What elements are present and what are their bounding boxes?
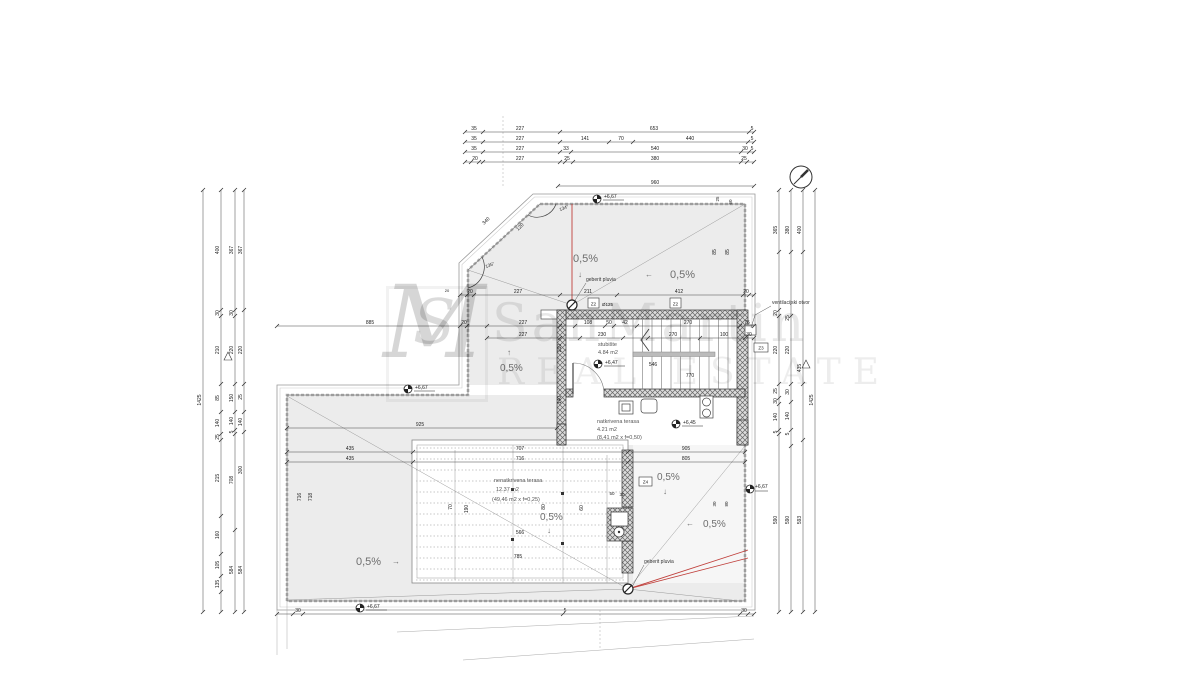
dim-label: 25 — [238, 394, 244, 400]
dim-label: 220 — [229, 346, 235, 355]
dim-label: 50 — [609, 491, 615, 496]
dim-label: 70 — [448, 504, 454, 510]
tag-z2-left: Z2 — [591, 302, 597, 307]
dim-label: 220 — [785, 346, 791, 355]
dim-label: 340 — [481, 216, 491, 226]
dim-label: 20 — [461, 320, 467, 326]
arrow-right-icon: → — [392, 557, 400, 566]
slope-label-right-roof: 0,5% — [703, 519, 726, 530]
slope-label-lower-roof: 0,5% — [356, 556, 381, 568]
arrow-left-icon: ← — [645, 270, 653, 279]
room-nenatkrivena-name: nenatkrivena terasa — [494, 478, 543, 484]
dim-label: 270 — [669, 332, 678, 338]
dim-label: 30 — [746, 332, 752, 338]
dim-label: 380 — [785, 226, 791, 235]
dim-label: 590 — [773, 516, 779, 525]
dim-label: 227 — [516, 146, 525, 152]
dim-label: 211 — [584, 289, 592, 295]
stair-handrail — [633, 352, 715, 357]
dim-label: 85 — [712, 249, 718, 255]
dim-label: 70 — [618, 136, 624, 142]
dim-label: 33 — [563, 146, 569, 152]
room-nenatkrivena-factor: (49,46 m2 x f=0,25) — [492, 497, 540, 503]
dim-label: 1425 — [197, 394, 203, 405]
dim-label: 25 — [741, 156, 747, 162]
dim-label: 141 — [581, 136, 590, 142]
elevation-roof-top: +6,67 — [604, 194, 617, 200]
dim-label: 367 — [229, 246, 235, 255]
terrace-fixtures — [619, 396, 713, 418]
dim-label: 60 — [728, 199, 733, 205]
dim-label: 35 — [471, 146, 477, 152]
dim-label: 25 — [564, 156, 570, 162]
dim-label: 805 — [682, 456, 691, 462]
dim-label: 540 — [651, 146, 660, 152]
chimney — [607, 508, 633, 541]
dim-label: 230 — [598, 332, 607, 338]
dim-label: 708 — [229, 476, 235, 485]
slope-label-left-strip: 0,5% — [500, 363, 523, 374]
dim-label: 435 — [346, 456, 355, 462]
dim-label: 108 — [584, 320, 593, 326]
dim-label: 5 — [564, 608, 567, 614]
room-natkrivena-area: 4.21 m2 — [597, 427, 617, 433]
arrow-down-icon: ↓ — [547, 526, 551, 535]
dim-label: 5 — [773, 430, 779, 433]
dim-label: 785 — [514, 554, 523, 560]
dim-label: 140 — [215, 419, 221, 428]
elevation-stair: +6,47 — [605, 360, 618, 366]
dim-label: 227 — [519, 332, 528, 338]
dim-label: 885 — [366, 320, 375, 326]
dim-label: 718 — [308, 493, 314, 502]
dim-label: 227 — [514, 289, 523, 295]
dim-label: 160 — [215, 531, 221, 540]
dim-label: 584 — [238, 566, 244, 575]
dim-label: 367 — [238, 246, 244, 255]
dim-label: 440 — [686, 136, 695, 142]
dim-label: 75 — [744, 320, 750, 326]
dim-label: 5 — [229, 430, 235, 433]
dim-label: 227 — [519, 320, 528, 326]
dim-label: 5 — [751, 136, 754, 142]
dim-label: 100 — [720, 332, 729, 338]
dim-label: 85 — [725, 249, 731, 255]
arrow-down-icon: ↓ — [663, 487, 667, 496]
drain-label-upper: geberit pluvia — [586, 277, 616, 283]
dim-label: 400 — [215, 246, 221, 255]
floor-drain-icon — [567, 300, 577, 310]
dim-label: 5 — [751, 146, 754, 152]
dim-label: 35 — [471, 126, 477, 132]
slope-label-mid: 0,5% — [657, 472, 680, 483]
dim-label: 25 — [785, 315, 791, 321]
tag-z3: Z3 — [758, 346, 764, 351]
dim-label: 140 — [557, 396, 563, 405]
slope-label-upper-roof: 0,5% — [573, 253, 598, 265]
elevation-right: +6,67 — [755, 484, 768, 490]
dim-label: 105 — [215, 561, 221, 570]
dim-label: 25 — [215, 434, 221, 440]
dim-label: 227 — [516, 136, 525, 142]
dim-label: 653 — [650, 126, 659, 132]
dim-label: 960 — [651, 180, 660, 186]
dim-label: 412 — [675, 289, 684, 295]
dim-label: 135 — [215, 580, 221, 589]
dim-label: 716 — [297, 493, 303, 502]
dim-label: 140 — [773, 413, 779, 422]
dim-label: 20 — [773, 310, 779, 316]
floor-plan-canvas: Z2 Z2 Z3 Z4 0,5% ↓ ← 0,5% ↑ 0,5% 0,5% ↓ … — [0, 0, 1200, 675]
dim-label: 227 — [516, 126, 525, 132]
dim-label: 20 — [743, 289, 749, 295]
room-natkrivena-factor: (8,41 m2 x f=0,50) — [597, 435, 642, 441]
dim-label: 30 — [785, 389, 791, 395]
dim-label: 300 — [238, 466, 244, 475]
dim-label: 25 — [773, 388, 779, 394]
dim-label: 30 — [229, 310, 235, 316]
slope-label-deck: 0,5% — [540, 512, 563, 523]
dim-label: 20 — [472, 156, 478, 162]
elevation-terrace-covered: +6,45 — [683, 420, 696, 426]
dim-label: 30 — [741, 608, 747, 614]
dim-label: 50 — [606, 320, 612, 326]
dim-label: 140 — [229, 417, 235, 426]
dim-label: 5 — [785, 432, 791, 435]
arrow-up-icon: ↑ — [507, 348, 511, 357]
dim-label: 85 — [215, 395, 221, 401]
room-stubiste-area: 4.84 m2 — [598, 350, 618, 356]
dim-label: 227 — [516, 156, 525, 162]
elevation-lower-roof: +6,67 — [415, 385, 428, 391]
room-natkrivena-name: natkrivena terasa — [597, 419, 640, 425]
dim-label: 30 — [619, 492, 625, 497]
dim-label: 435 — [797, 364, 803, 373]
dim-label: 716 — [516, 456, 525, 462]
dim-label: 220 — [238, 346, 244, 355]
arrow-left-icon: ← — [686, 519, 694, 528]
dim-label: 584 — [229, 566, 235, 575]
dim-label: 30 — [215, 310, 221, 316]
tag-z4: Z4 — [643, 480, 649, 485]
dim-label: 20 — [467, 289, 473, 295]
dim-label: 546 — [649, 362, 658, 368]
dim-label: 80 — [541, 504, 547, 510]
dim-label: 30 — [295, 608, 301, 614]
dim-label: 435 — [346, 446, 355, 452]
pipe-label: Ø125 — [602, 302, 614, 307]
dim-label: 140 — [238, 418, 244, 427]
dim-label: 925 — [416, 422, 425, 428]
dim-label: 42 — [622, 320, 628, 326]
dim-label: 25 — [715, 196, 720, 202]
dim-label: 380 — [651, 156, 660, 162]
drain-label-lower: geberit pluvia — [644, 559, 674, 565]
dim-label: 210 — [557, 344, 563, 353]
dim-label: 707 — [516, 446, 525, 452]
arrow-down-icon: ↓ — [578, 270, 582, 279]
dim-label: 60 — [579, 505, 585, 511]
dim-label: 1425 — [809, 394, 815, 405]
dim-label: 270 — [684, 320, 693, 326]
dim-label: 210 — [215, 346, 221, 355]
dim-label: 30 — [712, 501, 717, 507]
floor-drain-icon — [623, 584, 633, 594]
dim-label: 35 — [471, 136, 477, 142]
dim-label: 30 — [773, 398, 779, 404]
dim-label: 770 — [686, 373, 695, 379]
dim-label: 566 — [516, 530, 525, 536]
roof-upper-area — [468, 204, 745, 385]
dim-label: 80 — [724, 501, 729, 507]
dim-label: 220 — [773, 346, 779, 355]
dim-label: 400 — [797, 226, 803, 235]
roof-plan-drawing: Z2 Z2 Z3 Z4 0,5% ↓ ← 0,5% ↑ 0,5% 0,5% ↓ … — [0, 0, 1200, 675]
dim-label: 215 — [215, 474, 221, 483]
dim-label: 190 — [464, 505, 470, 514]
dim-label: 20 — [445, 288, 450, 293]
dim-label: 905 — [682, 446, 691, 452]
north-compass-icon — [790, 166, 812, 188]
dim-label: 5 — [751, 126, 754, 132]
dim-label: 590 — [785, 516, 791, 525]
dim-label: 150 — [229, 394, 235, 403]
dim-label: 593 — [797, 516, 803, 525]
dim-label: 365 — [773, 226, 779, 235]
room-nenatkrivena-area: 12.37 m2 — [496, 487, 519, 493]
room-stubiste-name: stubište — [598, 342, 617, 348]
elevation-bottom: +6,67 — [367, 604, 380, 610]
dim-label: 30 — [742, 146, 748, 152]
tag-z2-right: Z2 — [673, 302, 679, 307]
slope-label-upper-roof-right: 0,5% — [670, 269, 695, 281]
dim-label: 140 — [785, 412, 791, 421]
